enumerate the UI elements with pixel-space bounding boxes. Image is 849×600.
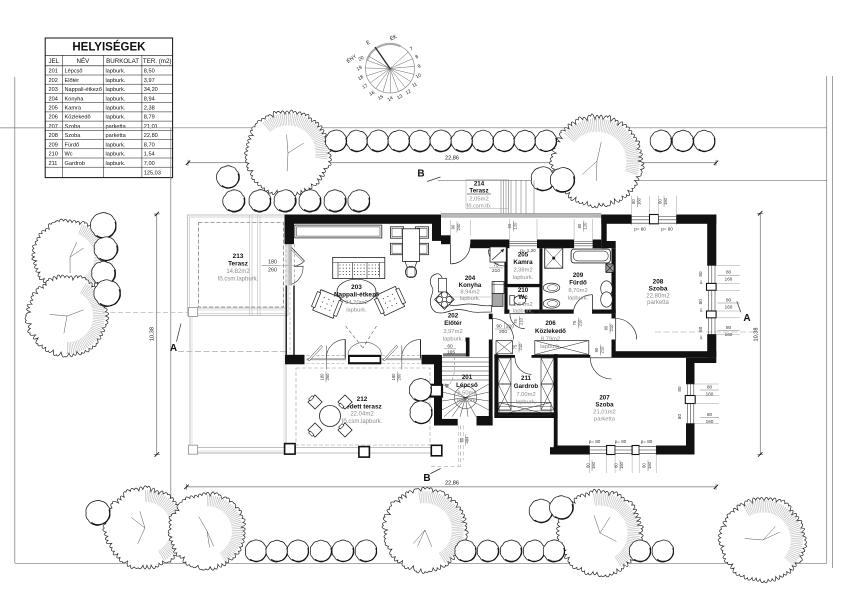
svg-text:8,79m2: 8,79m2 <box>541 337 560 343</box>
svg-text:2,38m2: 2,38m2 <box>513 268 532 274</box>
svg-text:lapburk.: lapburk. <box>106 96 126 102</box>
svg-text:lapburk.: lapburk. <box>106 87 126 93</box>
svg-text:208: 208 <box>49 133 58 139</box>
svg-text:lapburk.: lapburk. <box>513 275 534 281</box>
svg-text:209: 209 <box>573 272 584 279</box>
svg-text:484: 484 <box>464 436 469 444</box>
svg-text:p= 80: p= 80 <box>641 439 653 444</box>
svg-text:160: 160 <box>647 461 652 469</box>
svg-text:Nappali-étkező: Nappali-étkező <box>334 292 379 299</box>
svg-text:208: 208 <box>653 279 664 286</box>
svg-text:TER. (m2): TER. (m2) <box>143 58 172 65</box>
svg-text:BURKOLAT: BURKOLAT <box>106 58 139 65</box>
svg-text:lapburk.: lapburk. <box>106 115 126 121</box>
svg-text:211: 211 <box>521 375 532 382</box>
svg-text:201: 201 <box>49 69 58 75</box>
svg-text:80: 80 <box>677 386 682 392</box>
svg-text:10,38: 10,38 <box>754 328 760 342</box>
svg-text:lapburk.: lapburk. <box>443 337 464 343</box>
svg-text:212: 212 <box>357 396 368 403</box>
svg-text:202: 202 <box>49 78 58 84</box>
svg-text:Terasz: Terasz <box>228 261 248 268</box>
svg-text:14,82m2: 14,82m2 <box>226 269 250 275</box>
svg-text:B: B <box>423 473 430 484</box>
svg-text:1,54m2: 1,54m2 <box>513 302 532 308</box>
svg-text:Konyha: Konyha <box>65 96 85 102</box>
svg-text:Nappali-étkező: Nappali-étkező <box>65 87 102 93</box>
svg-text:160: 160 <box>725 277 733 282</box>
svg-text:260: 260 <box>268 268 277 274</box>
svg-text:205: 205 <box>49 106 58 112</box>
svg-text:80: 80 <box>698 326 703 332</box>
svg-text:22,80m2: 22,80m2 <box>646 294 670 300</box>
svg-text:Lépcső: Lépcső <box>65 69 83 75</box>
svg-text:120: 120 <box>512 222 517 230</box>
svg-text:8,70m2: 8,70m2 <box>568 288 587 294</box>
svg-text:fő.csm.lapburk.: fő.csm.lapburk. <box>342 419 383 425</box>
svg-text:22,86: 22,86 <box>445 156 459 162</box>
svg-text:p= 80: p= 80 <box>615 439 627 444</box>
svg-text:2,38: 2,38 <box>144 106 155 112</box>
svg-text:JEL: JEL <box>48 58 59 65</box>
svg-text:90: 90 <box>496 324 502 330</box>
svg-text:22,86: 22,86 <box>445 480 459 486</box>
svg-text:22,04m2: 22,04m2 <box>350 412 374 418</box>
svg-text:207: 207 <box>49 124 58 130</box>
svg-text:160: 160 <box>619 461 624 469</box>
svg-text:260: 260 <box>325 373 330 381</box>
svg-text:120: 120 <box>582 222 587 230</box>
svg-text:lapburk.: lapburk. <box>457 398 478 404</box>
svg-text:Közlekedő: Közlekedő <box>535 328 566 335</box>
svg-text:Fürdő: Fürdő <box>569 280 587 287</box>
svg-text:213: 213 <box>233 253 244 260</box>
svg-text:p=: p= <box>699 335 703 339</box>
svg-text:HELYISÉGEK: HELYISÉGEK <box>72 41 146 54</box>
svg-text:160: 160 <box>591 461 596 469</box>
svg-text:160: 160 <box>725 304 733 309</box>
svg-text:8,50m2: 8,50m2 <box>457 391 476 397</box>
svg-text:80: 80 <box>677 414 682 420</box>
svg-text:lapburk.: lapburk. <box>106 152 126 158</box>
svg-text:207: 207 <box>599 395 610 402</box>
svg-text:lapburk.: lapburk. <box>106 69 126 75</box>
svg-text:1,54: 1,54 <box>144 152 155 158</box>
svg-text:p=: p= <box>699 280 703 284</box>
svg-text:80: 80 <box>707 412 713 417</box>
svg-text:260: 260 <box>396 373 401 381</box>
svg-text:Wc: Wc <box>65 152 73 158</box>
svg-text:80: 80 <box>707 384 713 389</box>
svg-text:8,94m2: 8,94m2 <box>460 290 479 296</box>
svg-text:209: 209 <box>49 142 58 148</box>
svg-text:Lépcső: Lépcső <box>456 382 478 389</box>
svg-text:210: 210 <box>577 319 582 327</box>
svg-text:80: 80 <box>698 299 703 305</box>
svg-text:204: 204 <box>49 96 58 102</box>
svg-text:201: 201 <box>462 374 473 381</box>
svg-text:Gardrob: Gardrob <box>514 383 539 390</box>
svg-text:125,03: 125,03 <box>144 170 161 176</box>
svg-text:p=: p= <box>699 308 703 312</box>
svg-text:80: 80 <box>726 325 732 330</box>
svg-text:p= 80: p= 80 <box>589 439 601 444</box>
svg-text:lapburk.: lapburk. <box>346 308 367 314</box>
svg-text:Közlekedő: Közlekedő <box>65 115 91 121</box>
svg-text:210: 210 <box>518 343 523 351</box>
svg-text:3,97m2: 3,97m2 <box>443 329 462 335</box>
svg-text:8,50: 8,50 <box>144 69 155 75</box>
svg-text:parketta: parketta <box>106 133 127 139</box>
svg-text:Szoba: Szoba <box>595 402 614 409</box>
svg-text:180: 180 <box>268 260 277 266</box>
svg-text:80: 80 <box>698 271 703 277</box>
svg-text:7,00: 7,00 <box>144 161 155 167</box>
svg-text:210: 210 <box>49 152 58 158</box>
svg-text:Szoba: Szoba <box>65 124 82 130</box>
svg-text:lapburk.: lapburk. <box>106 106 126 112</box>
svg-text:210: 210 <box>518 317 523 325</box>
svg-text:75: 75 <box>493 262 499 268</box>
svg-text:8,94: 8,94 <box>144 96 155 102</box>
svg-text:21,01: 21,01 <box>144 124 158 130</box>
svg-text:parketta: parketta <box>106 124 127 130</box>
svg-text:NÉV: NÉV <box>77 58 91 65</box>
svg-text:8,79: 8,79 <box>144 115 155 121</box>
svg-text:210: 210 <box>609 324 614 332</box>
svg-text:204: 204 <box>465 275 476 282</box>
svg-text:240: 240 <box>456 223 461 231</box>
svg-text:7,00m2: 7,00m2 <box>516 392 535 398</box>
svg-text:34,20: 34,20 <box>144 87 158 93</box>
svg-text:210: 210 <box>518 287 529 294</box>
svg-text:8,70: 8,70 <box>144 142 155 148</box>
svg-text:A: A <box>743 313 750 324</box>
svg-text:lapburk.: lapburk. <box>106 142 126 148</box>
svg-text:Kamra: Kamra <box>513 259 533 266</box>
svg-text:Terasz: Terasz <box>469 188 488 195</box>
svg-text:211: 211 <box>49 161 58 167</box>
svg-text:80: 80 <box>726 297 732 302</box>
svg-text:lapburk.: lapburk. <box>106 78 126 84</box>
svg-text:lapburk.: lapburk. <box>106 161 126 167</box>
svg-text:21,01m2: 21,01m2 <box>593 410 616 416</box>
svg-text:parketta: parketta <box>594 417 616 423</box>
svg-text:160: 160 <box>663 197 668 205</box>
svg-text:lapburk.: lapburk. <box>568 296 589 302</box>
svg-text:202: 202 <box>448 313 459 320</box>
svg-text:10,38: 10,38 <box>150 327 156 341</box>
svg-text:Szoba: Szoba <box>65 133 82 139</box>
svg-text:210: 210 <box>492 268 500 274</box>
svg-text:A: A <box>170 343 177 354</box>
svg-text:lapburk.: lapburk. <box>516 400 537 406</box>
svg-text:160: 160 <box>636 197 641 205</box>
svg-text:Előtér: Előtér <box>444 320 462 327</box>
svg-text:80: 80 <box>726 270 732 275</box>
svg-text:206: 206 <box>49 115 58 121</box>
svg-text:205: 205 <box>518 252 529 259</box>
svg-text:p= 80: p= 80 <box>661 227 673 232</box>
svg-text:Kamra: Kamra <box>65 106 82 112</box>
svg-text:160: 160 <box>706 419 714 424</box>
svg-text:214: 214 <box>474 181 485 188</box>
svg-text:34,20m2: 34,20m2 <box>345 300 368 306</box>
svg-text:p= 80: p= 80 <box>634 227 646 232</box>
svg-text:Fürdő: Fürdő <box>65 142 80 148</box>
svg-text:Előtér: Előtér <box>65 78 80 84</box>
svg-text:Konyha: Konyha <box>459 282 482 289</box>
svg-text:210: 210 <box>599 346 604 354</box>
svg-text:lapburk.: lapburk. <box>513 309 534 315</box>
svg-text:200: 200 <box>499 329 507 335</box>
svg-text:3,97: 3,97 <box>144 78 155 84</box>
svg-text:22,80: 22,80 <box>144 133 158 139</box>
svg-text:fő.csm.lapburk.: fő.csm.lapburk. <box>218 277 259 283</box>
svg-text:2,05m2: 2,05m2 <box>469 197 488 203</box>
svg-text:B: B <box>417 169 424 180</box>
svg-text:Szoba: Szoba <box>649 286 668 293</box>
svg-text:Wc: Wc <box>518 294 528 301</box>
svg-text:206: 206 <box>545 320 556 327</box>
svg-text:203: 203 <box>49 87 58 93</box>
svg-text:parketta: parketta <box>647 300 669 306</box>
svg-text:203: 203 <box>351 284 362 291</box>
svg-text:Gardrob: Gardrob <box>65 161 86 167</box>
